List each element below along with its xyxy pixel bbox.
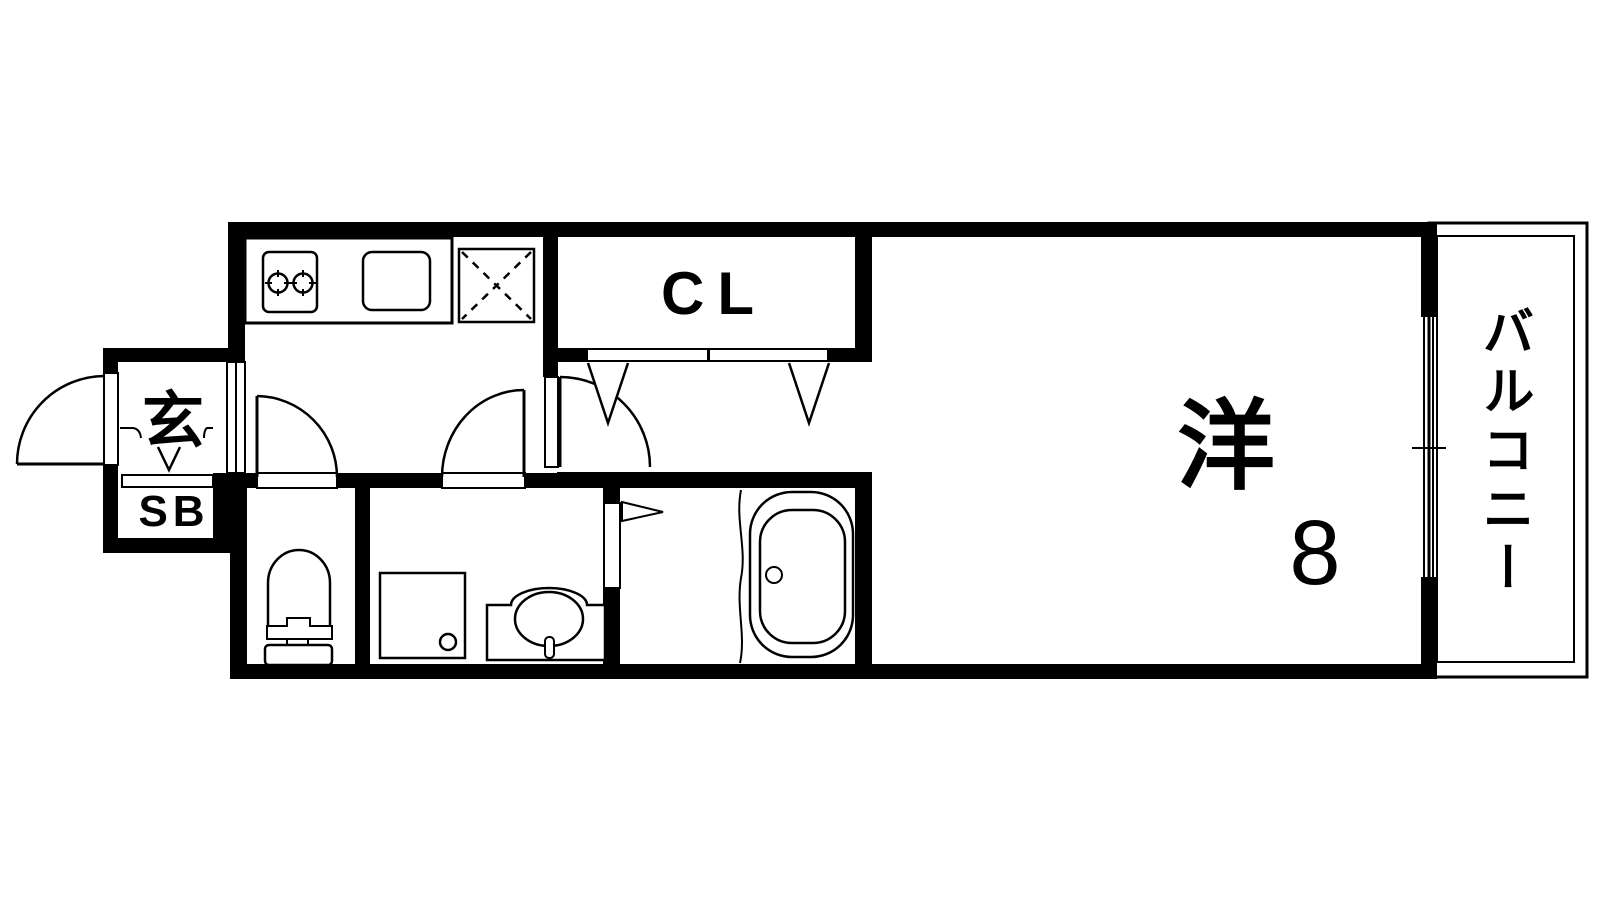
closet-door-panel — [709, 349, 828, 361]
refrigerator-icon — [459, 249, 534, 322]
bathroom-fixtures — [622, 490, 853, 663]
bath-folding-door-mark — [622, 502, 663, 521]
bath-door-jamb — [604, 503, 620, 588]
entrance-label: 玄 — [142, 391, 204, 453]
closet-door-panel — [587, 349, 708, 361]
entry-door-swing — [17, 376, 104, 464]
shoe-box-label: SB — [138, 490, 209, 534]
room-door-jamb — [545, 377, 558, 467]
balcony-label: バルコニー — [1477, 305, 1529, 600]
closet-label: CL — [661, 264, 767, 324]
toilet-door-swing — [257, 396, 337, 477]
entry-door-jamb — [104, 373, 118, 465]
washroom-door-sill — [442, 473, 525, 488]
bath-edge-wavy-line — [739, 490, 742, 663]
bathtub-icon — [750, 492, 853, 657]
kitchen-unit — [245, 238, 534, 323]
western-room-label: 洋 — [1177, 397, 1275, 495]
washroom-door-swing — [442, 390, 524, 477]
floor-plan-drawing — [0, 0, 1600, 900]
sink-icon — [363, 252, 430, 310]
stove-icon — [263, 252, 317, 312]
room-size-label: 8 — [1289, 507, 1340, 599]
toilet-icon — [265, 550, 332, 665]
toilet-door-sill — [257, 473, 337, 488]
washbasin-icon — [487, 588, 605, 660]
shower-tray-icon — [380, 573, 465, 658]
floor-plan: 玄 SB CL 洋 8 バルコニー — [0, 0, 1600, 900]
closet-folding-door-marks — [588, 363, 829, 423]
